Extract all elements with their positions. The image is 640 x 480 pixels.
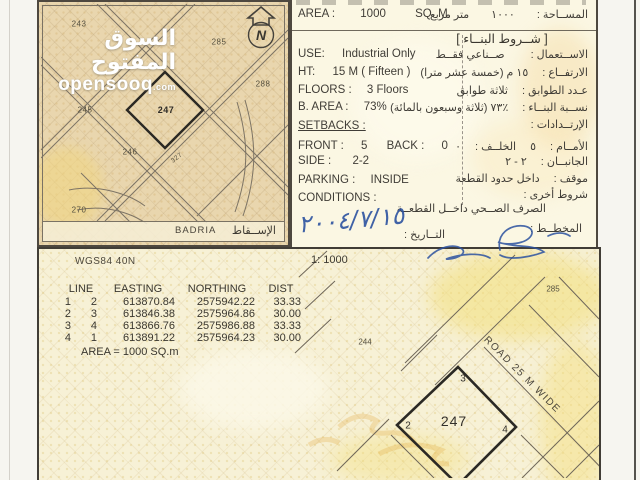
field-use-ar: الاســتعمال : صــناعي فقــط: [436, 48, 588, 61]
parking-label: PARKING :: [298, 174, 355, 186]
use-value-ar: صــناعي فقــط: [436, 48, 505, 61]
front-label: FRONT :: [298, 140, 344, 152]
height-value: 15 M ( Fifteen ): [332, 66, 410, 78]
plot-label-245: 245: [78, 106, 93, 115]
side-label: SIDE :: [298, 155, 331, 167]
table-cell: 2575986.88: [179, 320, 255, 332]
plot-label-270: 270: [72, 206, 87, 215]
table-cell: 2575942.22: [179, 296, 255, 308]
date-label-text: التــاريخ :: [404, 228, 445, 241]
planner-label-ar: المخطــط :: [530, 222, 582, 235]
field-parking-ar: موقف : داخل حدود القطعة: [455, 172, 588, 185]
field-area-ar: المســاحة : ١٠٠٠ متر مربع: [430, 8, 588, 21]
front-value-ar: ٥: [530, 140, 536, 153]
field-height-ar: الارتفــاع : ١٥ م (خمسة عشر مترا): [420, 66, 588, 79]
use-label-ar: الاســتعمال :: [531, 48, 588, 61]
scanned-land-survey-document: { "colors": { "paper": "#f6f5f0", "map_t…: [0, 0, 640, 480]
field-parking-en: PARKING : INSIDE: [298, 174, 409, 186]
table-cell: 2575964.23: [179, 332, 255, 344]
district-name-en: BADRIA: [175, 225, 216, 236]
back-label-ar: الخلــف :: [475, 140, 516, 153]
area-unit-ar: متر مربع: [430, 8, 469, 21]
scan-edge-left: [9, 0, 10, 480]
built-area-value-ar: ٪٧٣ (ثلاثة وسبعون بالمائة): [390, 101, 508, 114]
table-cell: 613891.22: [101, 332, 175, 344]
north-arrow-icon: N: [239, 4, 283, 50]
plot-label-288: 288: [256, 80, 271, 89]
field-built-area-en: B. AREA : 73%: [298, 101, 387, 113]
table-cell: 4: [81, 320, 97, 332]
north-letter: N: [256, 27, 267, 43]
height-label: HT:: [298, 66, 315, 78]
parking-value: INSIDE: [371, 174, 409, 186]
table-cell: 4: [55, 332, 71, 344]
back-value-ar: ٠: [455, 140, 461, 153]
use-value: Industrial Only: [342, 48, 416, 60]
handwritten-date: ٢٠٠٤/٧/١٥: [297, 201, 405, 238]
area-label: AREA :: [298, 8, 335, 20]
use-label: USE:: [298, 48, 325, 60]
building-terms-form: AREA : 1000 SQ. M. المســاحة : ١٠٠٠ متر …: [290, 0, 598, 247]
sewage-note-ar: الصرف الصــحي داخــل القطعــة: [397, 202, 546, 215]
field-side-ar: الجانبــان : ٢ - ٢: [505, 155, 588, 168]
area-label-ar: المســاحة :: [537, 8, 588, 21]
area-note: AREA = 1000 SQ.m: [81, 346, 179, 358]
district-band: BADRIA الإســقاط: [43, 221, 284, 241]
floors-value: 3 Floors: [367, 84, 409, 96]
plot-label-243: 243: [72, 20, 87, 29]
neighbor-plot-285: 285: [546, 285, 559, 294]
built-area-label: B. AREA :: [298, 101, 349, 113]
table-cell: 33.33: [261, 320, 301, 332]
conditions-value-ar: الصرف الصــحي داخــل القطعــة: [397, 202, 546, 215]
side-value-ar: ٢ - ٢: [505, 155, 527, 168]
setbacks-label: SETBACKS :: [298, 120, 366, 132]
table-cell: 2575964.86: [179, 308, 255, 320]
field-floors-en: FLOORS : 3 Floors: [298, 84, 408, 96]
field-front-back-ar: الأمــام : ٥ الخلــف : ٠: [455, 140, 588, 153]
corner-point-3: 3: [460, 374, 466, 385]
built-area-label-ar: نســبة البنــاء :: [522, 101, 588, 114]
plot-label-285: 285: [212, 38, 227, 47]
field-conditions-ar: شروط أخرى :: [524, 188, 588, 201]
conditions-label-ar: شروط أخرى :: [524, 188, 588, 201]
building-terms-header: [ شــروط البنــاء ]: [412, 31, 592, 46]
front-value: 5: [361, 140, 367, 152]
height-label-ar: الارتفــاع :: [542, 66, 588, 79]
plot-label-246: 246: [123, 148, 138, 157]
col-header-dist: DIST: [261, 283, 301, 295]
field-conditions-en: CONDITIONS :: [298, 192, 377, 204]
field-height-en: HT: 15 M ( Fifteen ): [298, 66, 410, 78]
table-cell: 33.33: [261, 296, 301, 308]
date-label-ar: التــاريخ :: [404, 228, 445, 241]
table-cell: 30.00: [261, 332, 301, 344]
parking-value-ar: داخل حدود القطعة: [455, 172, 539, 185]
survey-drawing-block: WGS84 40N 1: 1000 LINE EASTING NORTHING …: [37, 247, 601, 480]
col-header-easting: EASTING: [101, 283, 175, 295]
table-cell: 1: [81, 332, 97, 344]
location-key-map: 243 285 288 245 247 246 327 270 N BADRIA…: [37, 0, 290, 247]
area-value-ar: ١٠٠٠: [491, 8, 515, 21]
field-front-back-en: FRONT : 5 BACK : 0: [298, 140, 448, 152]
floors-label-ar: عـدد الطوابق :: [522, 84, 588, 97]
height-value-ar: ١٥ م (خمسة عشر مترا): [420, 66, 528, 79]
field-side-en: SIDE : 2-2: [298, 155, 369, 167]
conditions-label: CONDITIONS :: [298, 192, 377, 204]
corner-point-4: 4: [502, 425, 508, 436]
back-value: 0: [442, 140, 448, 152]
floors-label: FLOORS :: [298, 84, 352, 96]
datum-label: WGS84 40N: [75, 256, 136, 267]
cropped-row-remnant: [296, 0, 586, 5]
front-label-ar: الأمــام :: [550, 140, 588, 153]
table-cell: 30.00: [261, 308, 301, 320]
setbacks-label-ar: الإرتــدادات :: [531, 118, 588, 131]
col-header-line: LINE: [59, 283, 103, 295]
back-label: BACK :: [387, 140, 425, 152]
plot-number-247: 247: [441, 413, 467, 429]
table-cell: 613870.84: [101, 296, 175, 308]
field-setbacks-en: SETBACKS :: [298, 120, 366, 132]
scale-label: 1: 1000: [311, 254, 348, 266]
area-value: 1000: [360, 8, 386, 20]
district-name-ar: الإســقاط: [232, 224, 276, 237]
field-setbacks-ar: الإرتــدادات :: [531, 118, 588, 131]
parking-label-ar: موقف :: [554, 172, 588, 185]
table-cell: 1: [55, 296, 71, 308]
field-built-area-ar: نســبة البنــاء : ٪٧٣ (ثلاثة وسبعون بالم…: [390, 101, 588, 114]
table-cell: 3: [81, 308, 97, 320]
plot-label-247: 247: [158, 105, 175, 115]
side-value: 2-2: [352, 155, 369, 167]
table-cell: 2: [55, 308, 71, 320]
side-label-ar: الجانبــان :: [541, 155, 588, 168]
table-cell: 613866.76: [101, 320, 175, 332]
neighbor-plot-244: 244: [358, 338, 371, 347]
field-area-en: AREA : 1000 SQ. M.: [298, 8, 451, 20]
built-area-value: 73%: [364, 101, 387, 113]
table-cell: 2: [81, 296, 97, 308]
planner-label-text: المخطــط :: [530, 222, 582, 235]
col-header-northing: NORTHING: [179, 283, 255, 295]
floors-value-ar: ثلاثة طوابق: [457, 84, 508, 97]
field-use-en: USE: Industrial Only: [298, 48, 416, 60]
table-cell: 613846.38: [101, 308, 175, 320]
field-floors-ar: عـدد الطوابق : ثلاثة طوابق: [457, 84, 588, 97]
corner-point-2: 2: [405, 421, 411, 432]
table-cell: 3: [55, 320, 71, 332]
scan-edge-right: [634, 0, 636, 480]
